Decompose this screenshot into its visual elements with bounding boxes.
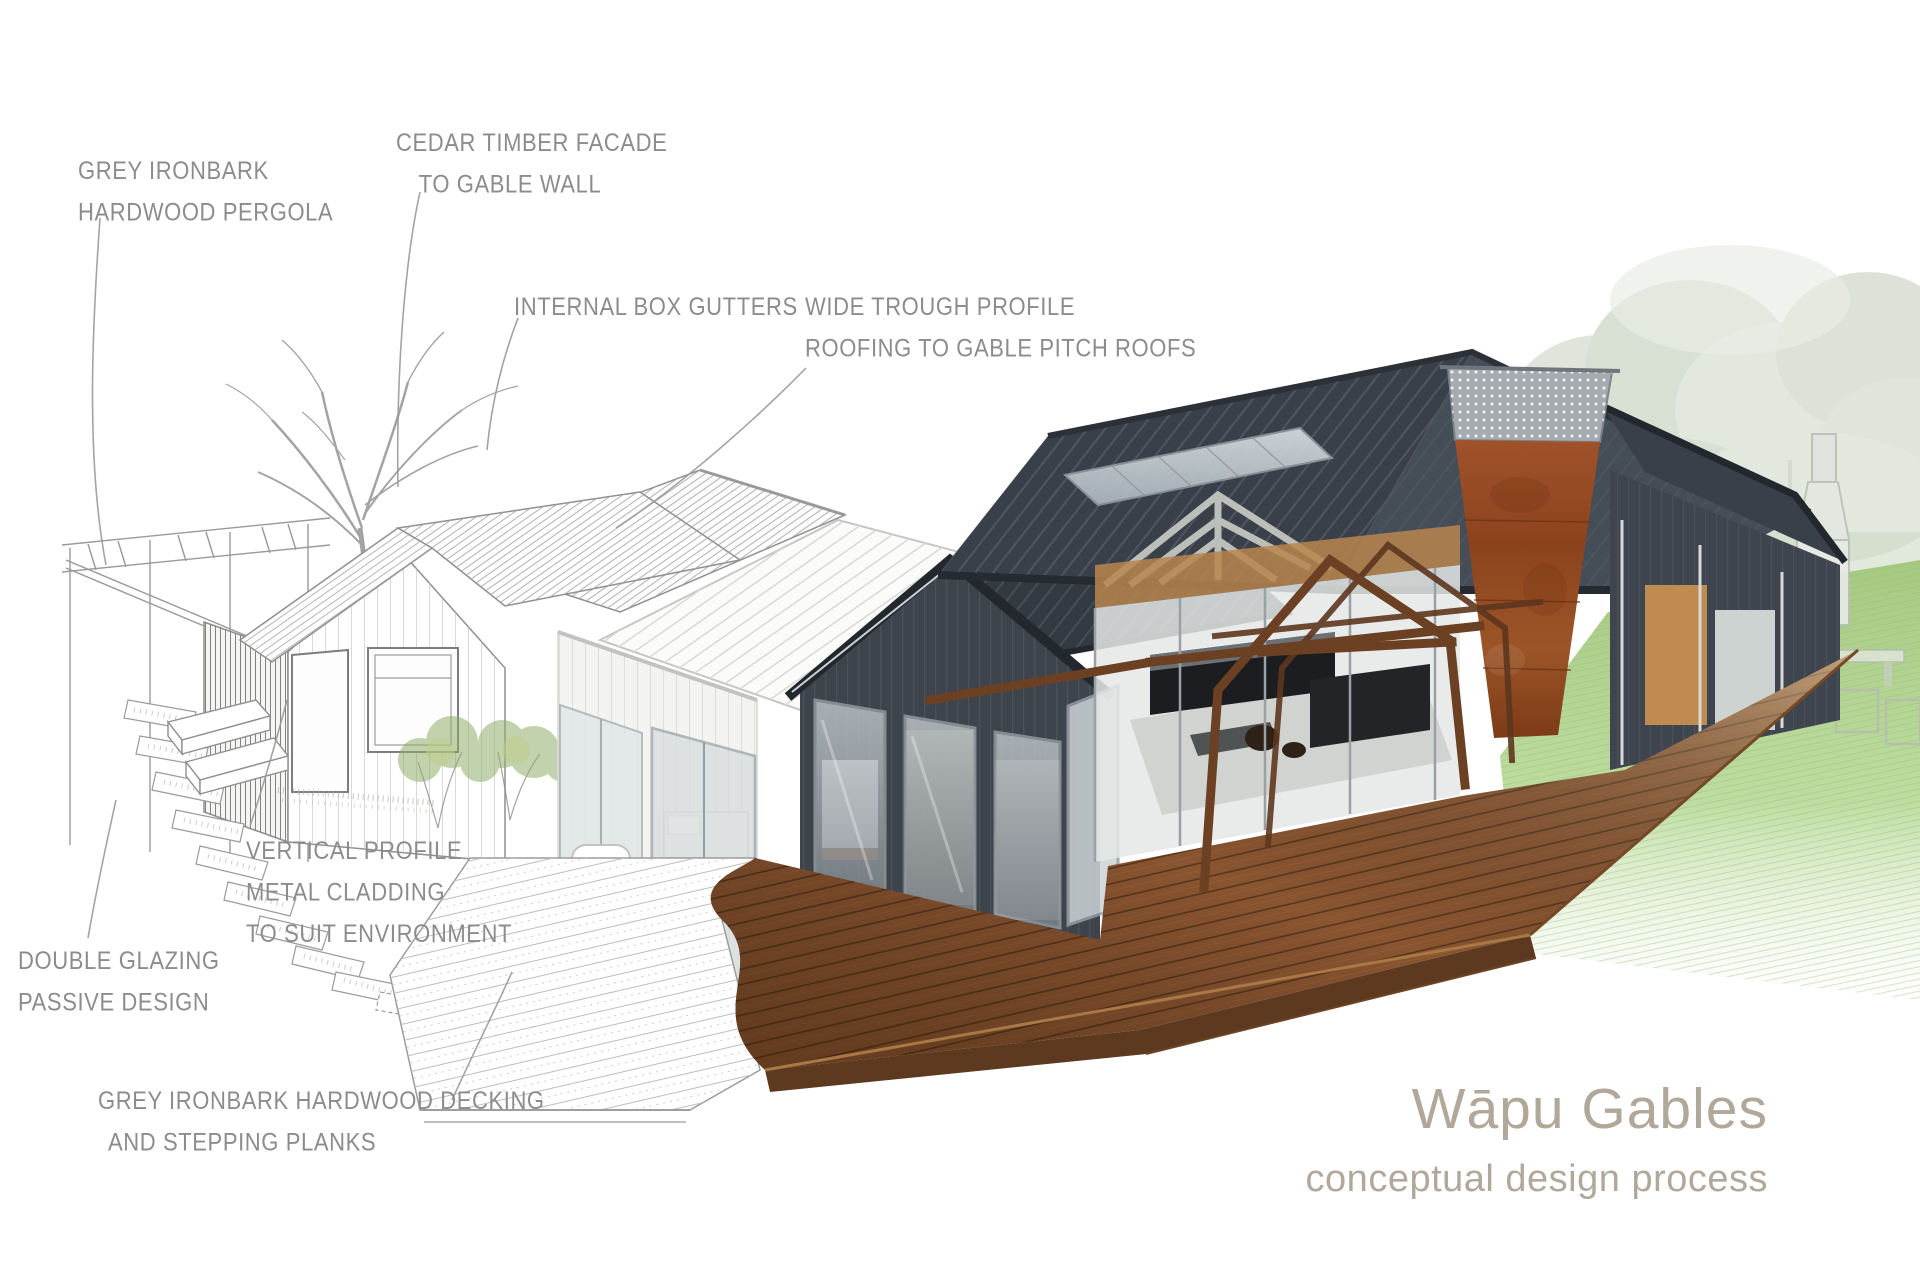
project-subtitle: conceptual design process [1306,1158,1768,1201]
concept-presentation-page: GREY IRONBARK HARDWOOD PERGOLA CEDAR TIM… [0,0,1920,1280]
annotation-line: HARDWOOD PERGOLA [78,191,333,232]
annotation-roofing: WIDE TROUGH PROFILE ROOFING TO GABLE PIT… [805,286,1196,369]
annotation-box-gutters: INTERNAL BOX GUTTERS [514,286,798,327]
annotation-line: INTERNAL BOX GUTTERS [514,286,798,327]
leader-gutters [487,318,518,450]
leader-glazing [88,800,116,938]
title-block: Wāpu Gables conceptual design process [1306,1076,1768,1201]
annotation-cladding: VERTICAL PROFILE METAL CLADDING TO SUIT … [246,830,512,954]
annotation-line: VERTICAL PROFILE [246,830,512,871]
leader-cedar [398,192,420,487]
annotation-glazing: DOUBLE GLAZING PASSIVE DESIGN [18,940,220,1023]
annotation-line: GREY IRONBARK [78,150,333,191]
leader-pergola [93,218,107,565]
annotation-line: ROOFING TO GABLE PITCH ROOFS [805,327,1196,368]
annotation-line: TO GABLE WALL [396,163,624,204]
annotation-line: METAL CLADDING [246,871,512,912]
annotation-line: AND STEPPING PLANKS [98,1121,545,1162]
annotation-line: DOUBLE GLAZING [18,940,220,981]
annotation-line: PASSIVE DESIGN [18,981,220,1022]
annotation-line: CEDAR TIMBER FACADE [396,122,624,163]
project-title: Wāpu Gables [1306,1076,1768,1142]
annotation-decking: GREY IRONBARK HARDWOOD DECKING AND STEPP… [98,1080,545,1163]
annotation-pergola: GREY IRONBARK HARDWOOD PERGOLA [78,150,333,233]
annotation-line: TO SUIT ENVIRONMENT [246,913,512,954]
annotation-line: WIDE TROUGH PROFILE [805,286,1196,327]
annotation-line: GREY IRONBARK HARDWOOD DECKING [98,1080,545,1121]
annotation-cedar-facade: CEDAR TIMBER FACADE TO GABLE WALL [396,122,624,205]
